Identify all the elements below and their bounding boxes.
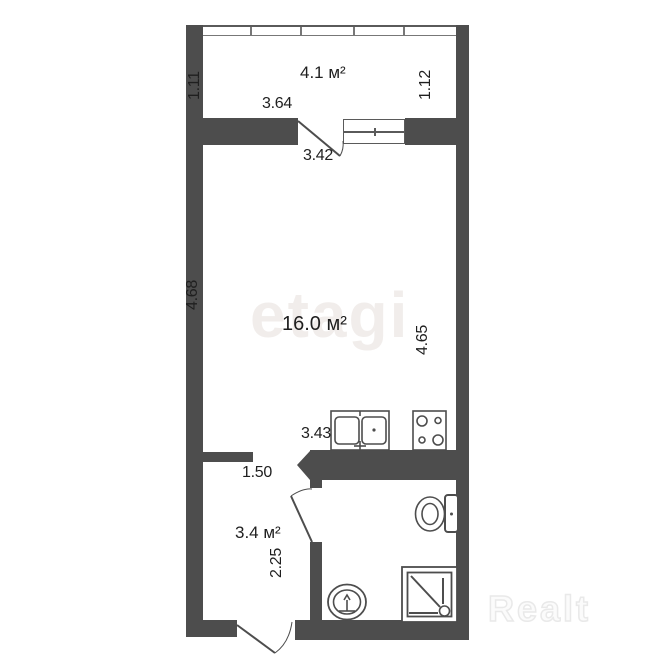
- realt-watermark: Realt: [488, 588, 591, 630]
- glazing-mullion: [300, 27, 302, 35]
- room-dim-left: 4.68: [183, 265, 203, 310]
- floor-plan: etagi Realt: [0, 0, 658, 658]
- balcony-dim-right: 1.12: [416, 60, 436, 100]
- glazing-mullion: [250, 27, 252, 35]
- balcony-dim-width: 3.64: [262, 96, 292, 112]
- window-center-tick: [374, 128, 376, 136]
- glazing-mullion: [403, 27, 405, 35]
- bathroom-door-swing: [291, 489, 312, 542]
- kitchen-wall-dim: 3.43: [301, 426, 331, 442]
- balcony-door-dim: 3.42: [303, 148, 333, 164]
- kitchen-bathroom-wall: [310, 450, 456, 480]
- toilet: [416, 495, 459, 532]
- bathroom-wall-upper: [310, 478, 322, 488]
- hallway-stub-wall: [198, 452, 253, 462]
- balcony-wall-right-segment: [405, 118, 456, 145]
- hall-area-label: 3.4 м²: [235, 524, 281, 541]
- shower-tray: [402, 567, 457, 622]
- glazing-mullion: [353, 27, 355, 35]
- balcony-glazing-window: [203, 25, 456, 36]
- bathroom-dim: 2.25: [267, 540, 287, 578]
- room-dim-right: 4.65: [413, 310, 433, 355]
- bottom-wall-right: [295, 620, 469, 640]
- washbasin: [328, 585, 366, 620]
- right-wall: [456, 25, 469, 640]
- balcony-area-label: 4.1 м²: [300, 64, 346, 81]
- balcony-dim-left: 1.11: [185, 60, 205, 100]
- room-area-label: 16.0 м²: [282, 314, 347, 334]
- kitchen-wall-end-notch: [297, 451, 310, 480]
- entrance-door-swing: [237, 622, 292, 653]
- left-wall: [186, 25, 203, 637]
- balcony-wall-left-segment: [186, 118, 298, 145]
- stove: [413, 411, 446, 450]
- hall-dim-width: 1.50: [242, 465, 272, 481]
- kitchen-sink: [331, 411, 389, 450]
- bottom-wall-left: [186, 620, 237, 637]
- room-window: [343, 119, 405, 144]
